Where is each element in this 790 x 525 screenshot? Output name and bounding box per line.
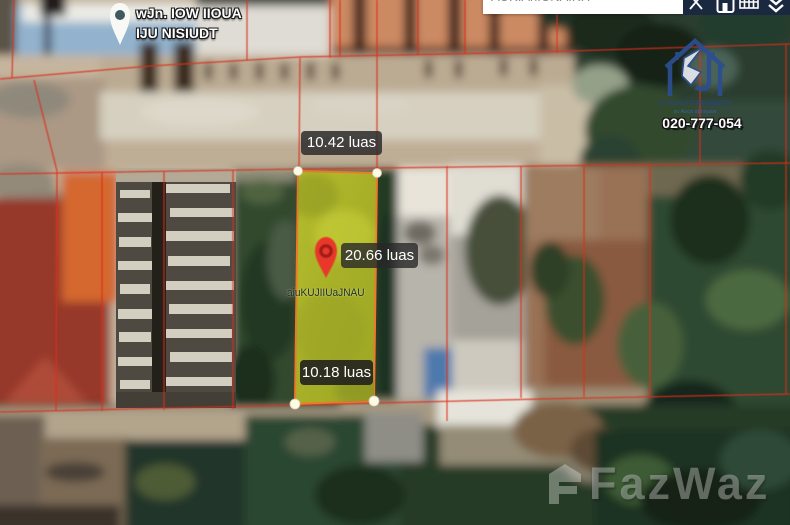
svg-text:SJ REALTY PROPERTY: SJ REALTY PROPERTY (659, 100, 732, 107)
